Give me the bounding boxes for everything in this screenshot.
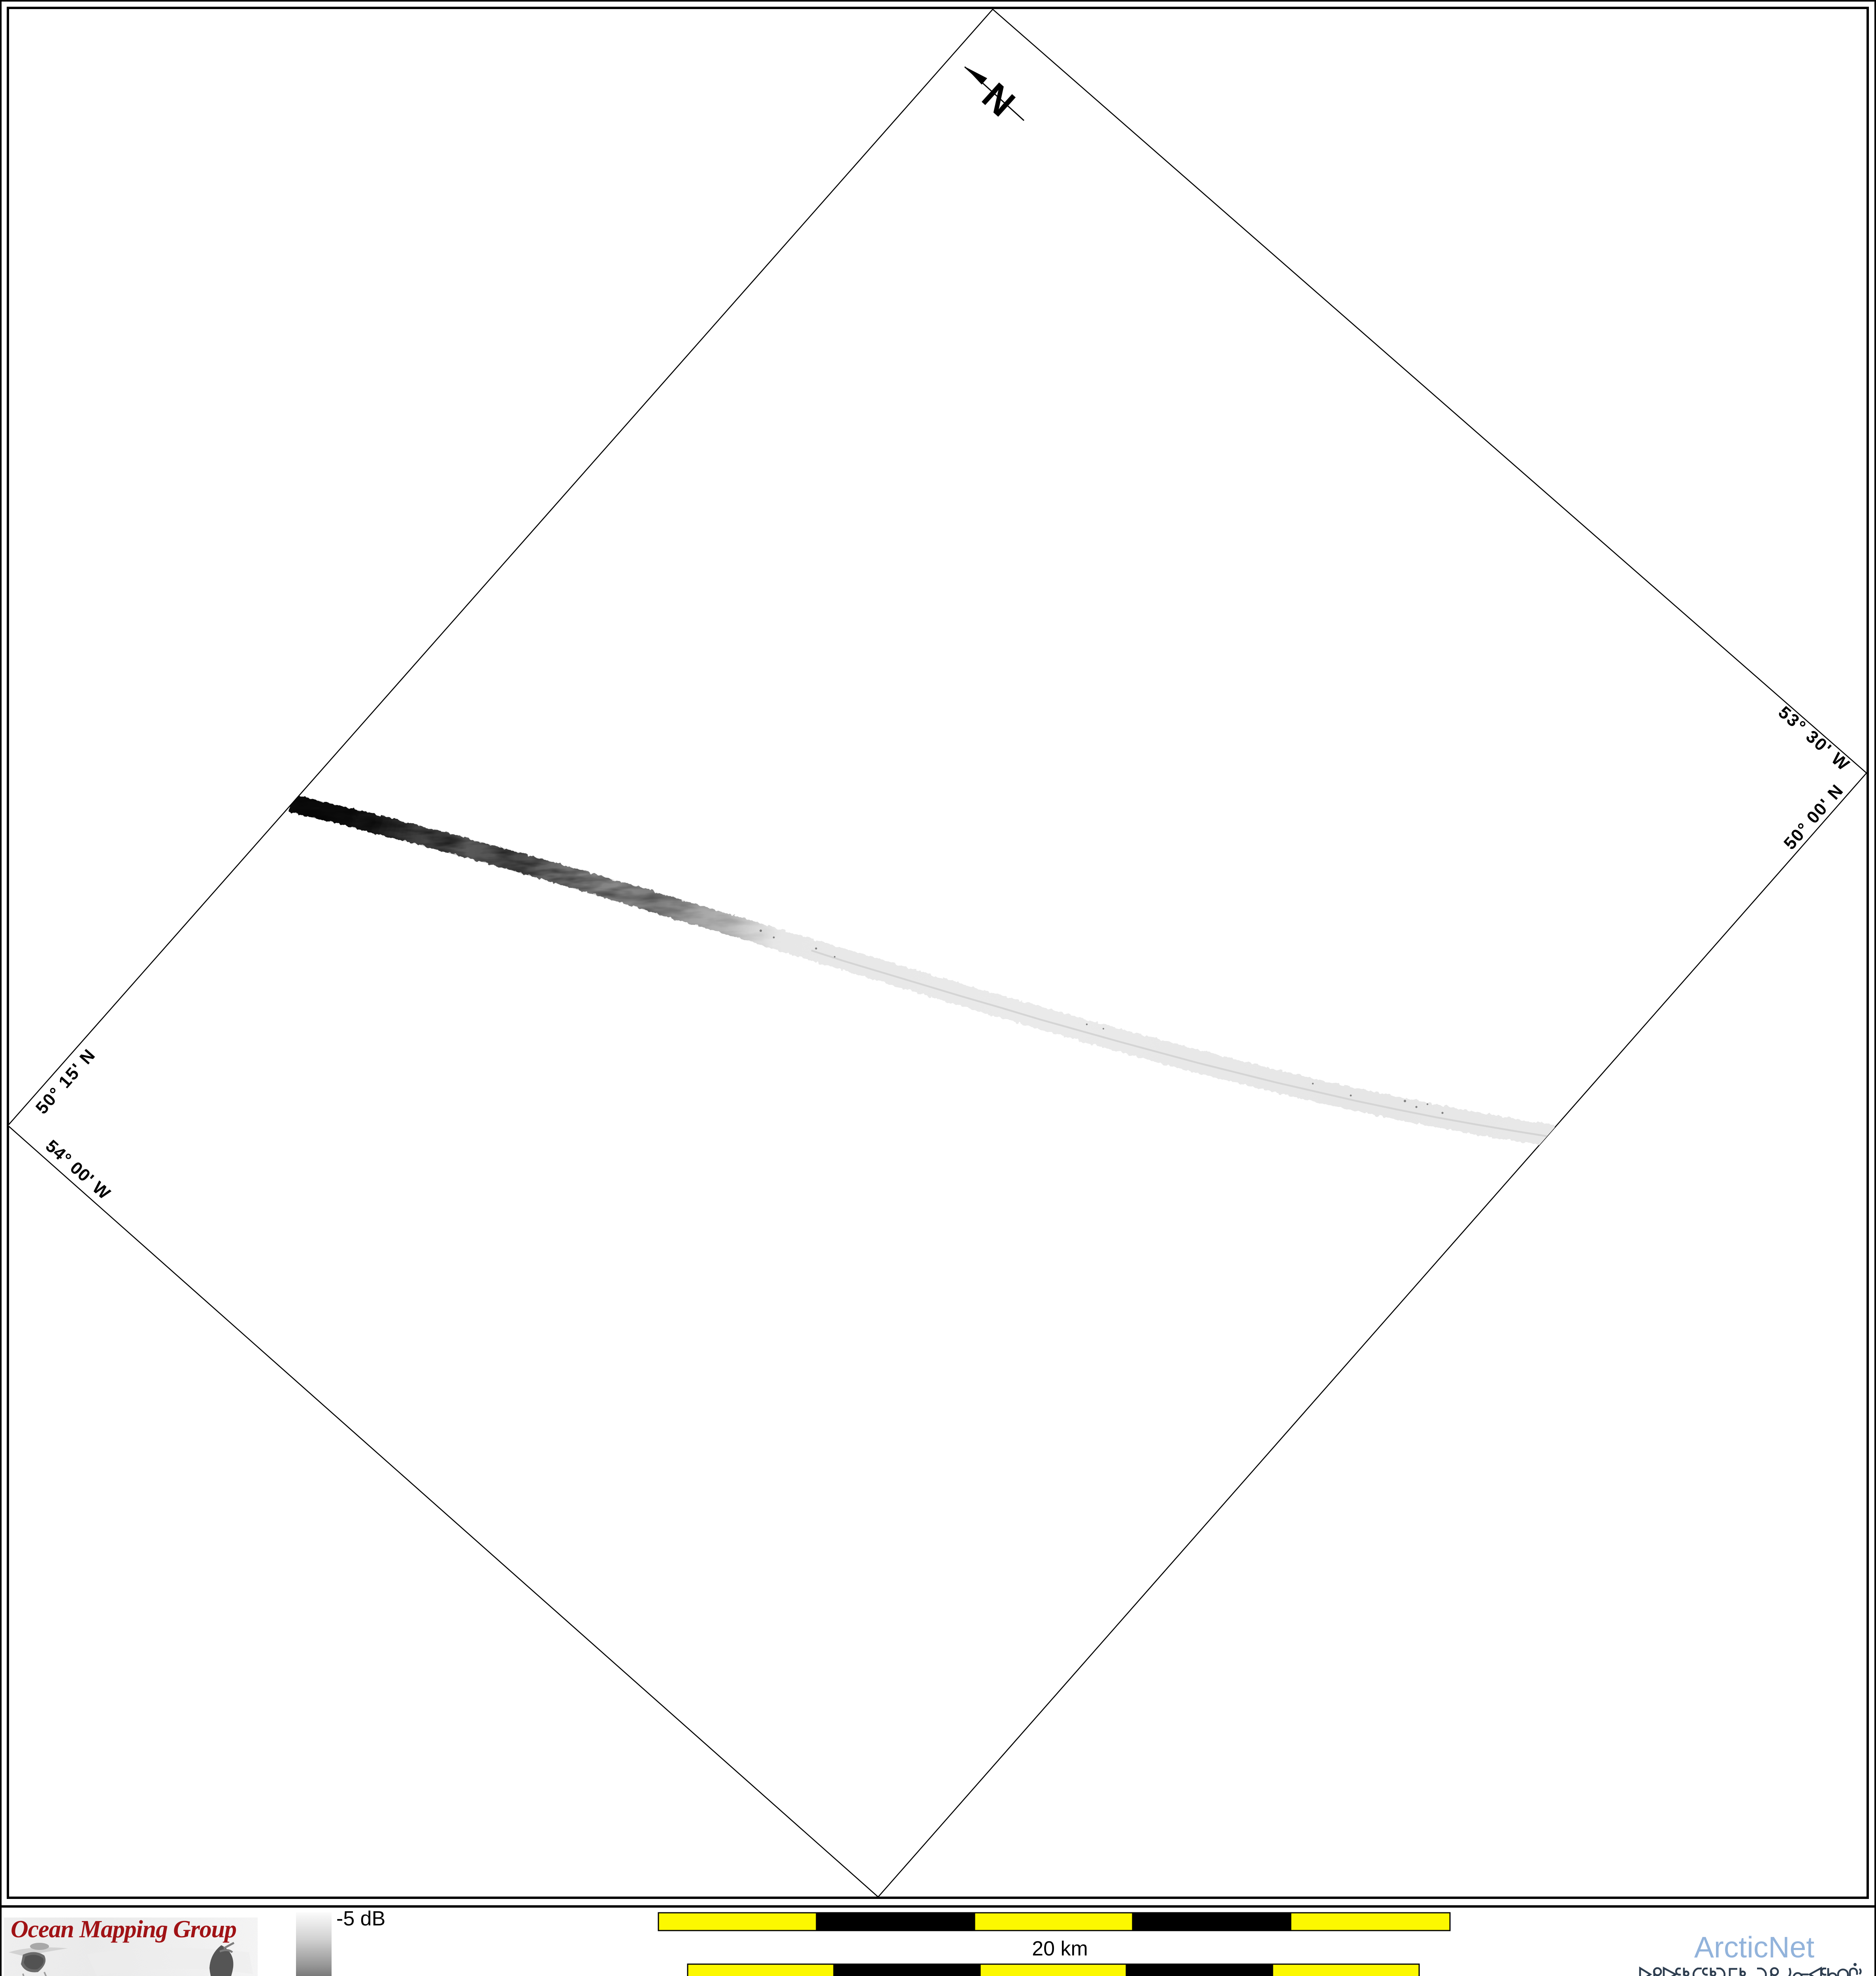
svg-text:ArcticNet: ArcticNet <box>1694 1931 1814 1964</box>
svg-text:20 km: 20 km <box>1032 1937 1088 1960</box>
svg-text:Ocean Mapping Group: Ocean Mapping Group <box>11 1916 237 1943</box>
svg-text:-5 dB: -5 dB <box>336 1907 385 1930</box>
